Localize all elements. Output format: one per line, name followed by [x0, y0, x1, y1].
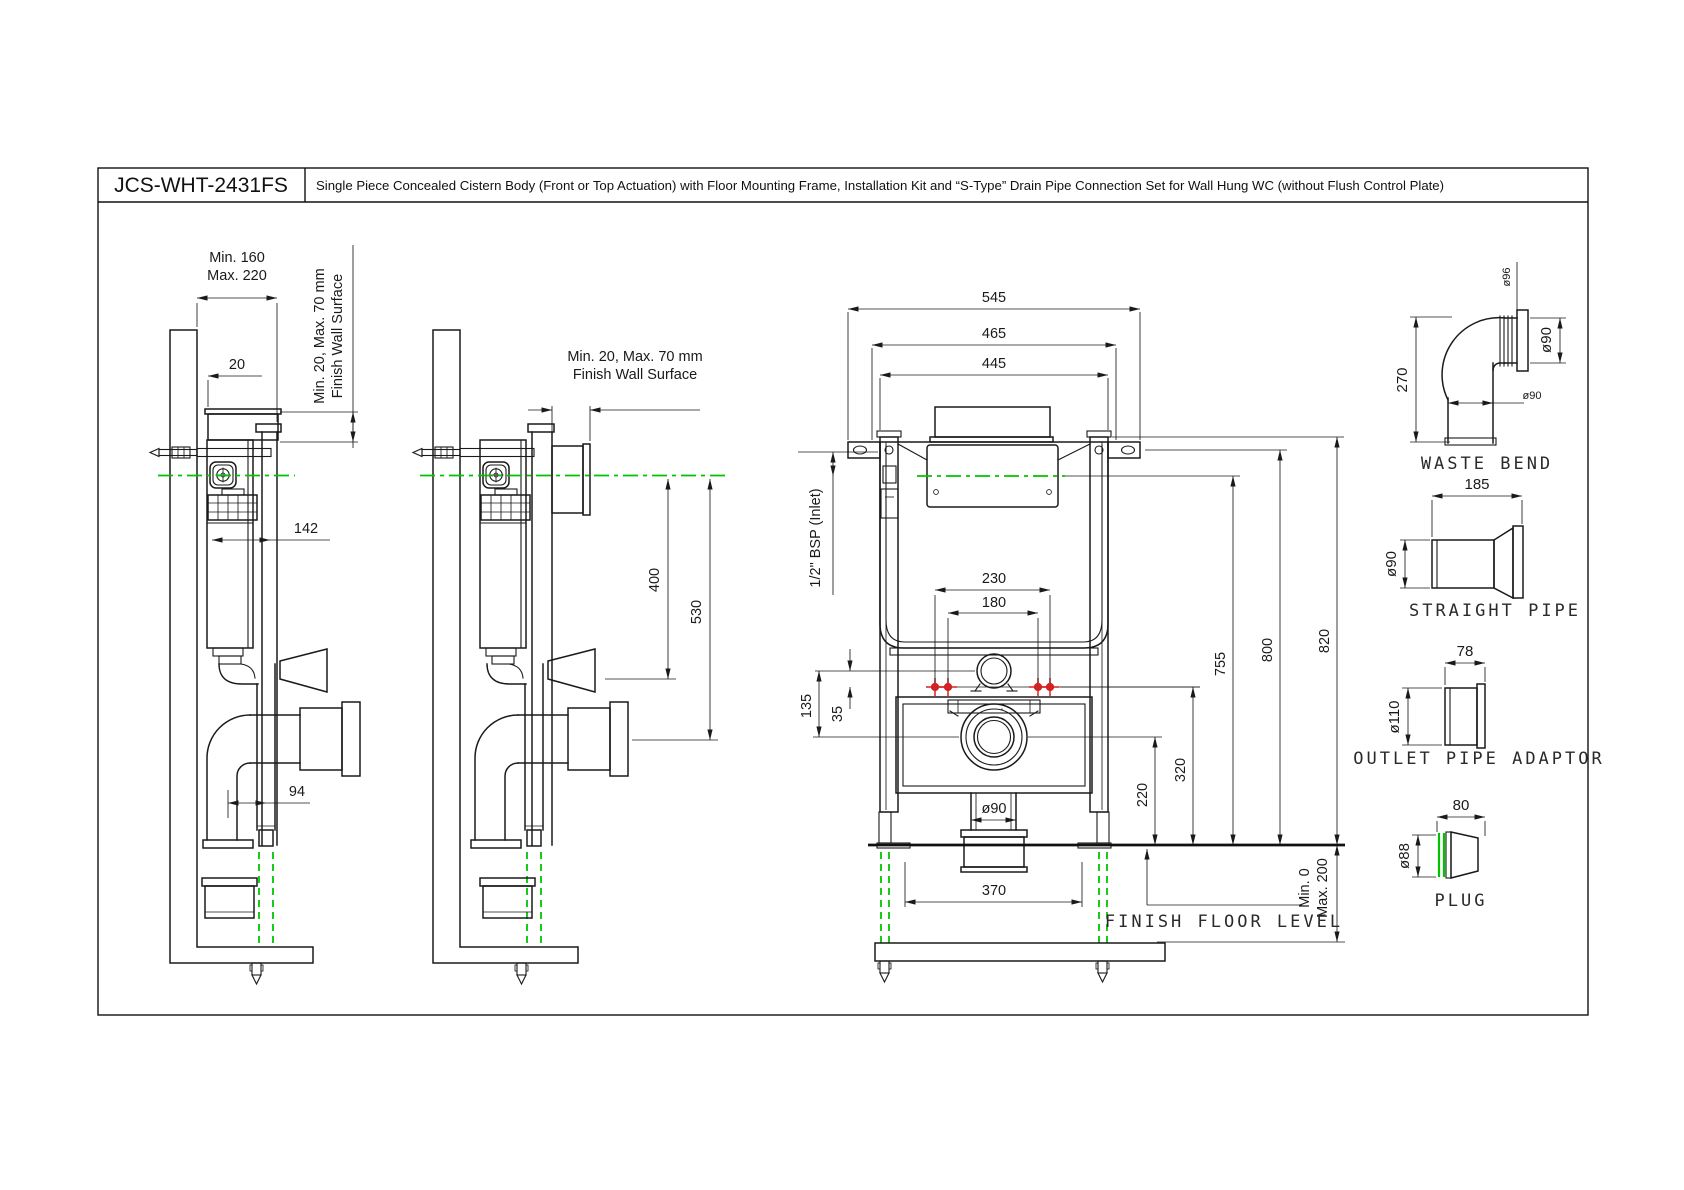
waste-bend-label: WASTE BEND: [1421, 454, 1553, 474]
part-outlet-pipe-adaptor: 78 ø110 OUTLET PIPE ADAPTOR: [1353, 643, 1604, 769]
dim-outlet-dia: ø90: [982, 801, 1007, 817]
dim-pipe-length: 185: [1464, 476, 1489, 493]
dim-panel-cl-height: 755: [1213, 652, 1229, 676]
title-block: JCS-WHT-2431FS Single Piece Concealed Ci…: [114, 174, 1444, 197]
dim-frame-width: 445: [982, 356, 1006, 372]
finish-floor-label: FINISH FLOOR LEVEL: [1105, 912, 1343, 932]
structural-floor: [875, 943, 1165, 961]
dim-panel-height: 400: [647, 568, 663, 592]
dim-plug-length: 80: [1453, 797, 1470, 814]
technical-drawing-page: JCS-WHT-2431FS Single Piece Concealed Ci…: [0, 0, 1684, 1190]
dim-bend-d90-outlet: ø90: [1538, 327, 1555, 353]
wall-bracket-right: [1108, 442, 1140, 458]
dim-rear-gap: 20: [229, 357, 245, 373]
dim-body-depth: 142: [294, 521, 318, 537]
dim-fixing-height: 320: [1173, 758, 1189, 782]
dim-plug-dia: ø88: [1396, 843, 1413, 869]
dim-35: 35: [830, 706, 846, 722]
straight-pipe-label: STRAIGHT PIPE: [1409, 601, 1581, 621]
floor-range-min: Min. 0: [1297, 868, 1313, 908]
drawing-canvas: JCS-WHT-2431FS Single Piece Concealed Ci…: [0, 0, 1684, 1190]
dim-drain-height: 220: [1135, 783, 1151, 807]
dim-pipe-dia: ø90: [1383, 551, 1400, 577]
wall-floor-section: [170, 330, 313, 963]
wall-note-line2: Finish Wall Surface: [573, 367, 697, 383]
dim-foot-span: 370: [982, 883, 1006, 899]
wall-bracket-left: [848, 442, 880, 458]
floor-range-max: Max. 200: [1315, 858, 1331, 918]
dim-fixing-inner: 180: [982, 595, 1006, 611]
part-plug: 80 ø88 PLUG: [1396, 797, 1487, 911]
part-straight-pipe: 185 ø90 STRAIGHT PIPE: [1383, 476, 1581, 621]
dim-fixing-outer: 230: [982, 571, 1006, 587]
plug-label: PLUG: [1435, 891, 1488, 911]
dim-bend-d90-body: ø90: [1523, 390, 1542, 402]
part-waste-bend: 270 ø96 ø90 ø90 WASTE BEND: [1394, 262, 1566, 474]
dim-bracket-height: 800: [1260, 638, 1276, 662]
side-view-top-actuation: Min. 160 Max. 220 20 Min. 20, Max. 70 mm…: [150, 245, 360, 984]
dim-adaptor-length: 78: [1457, 643, 1474, 660]
dim-bracket-width: 465: [982, 326, 1006, 342]
model-number: JCS-WHT-2431FS: [114, 174, 288, 197]
dim-overall-width: 545: [982, 290, 1006, 306]
dim-adaptor-dia: ø110: [1386, 700, 1403, 733]
dim-outlet-offset: 94: [289, 784, 305, 800]
inlet-note: 1/2" BSP (Inlet): [808, 488, 824, 587]
wall-note-line1: Min. 20, Max. 70 mm: [312, 268, 328, 403]
dim-spud-height: 530: [689, 600, 705, 624]
side-view-front-actuation: Min. 20, Max. 70 mm Finish Wall Surface …: [413, 330, 725, 984]
front-view: 545 465 445 1/2" BSP (Inlet) 230 180 135…: [798, 290, 1345, 982]
outlet-adaptor-label: OUTLET PIPE ADAPTOR: [1353, 749, 1604, 769]
dim-bend-d96: ø96: [1501, 268, 1513, 287]
dim-depth-min: Min. 160: [209, 250, 265, 266]
wall-floor-section: [433, 330, 578, 963]
dim-bend-height: 270: [1394, 367, 1411, 392]
dim-frame-height: 820: [1317, 629, 1333, 653]
dim-135: 135: [799, 694, 815, 718]
dim-depth-max: Max. 220: [207, 268, 267, 284]
wall-note-line2: Finish Wall Surface: [330, 274, 346, 398]
drawing-description: Single Piece Concealed Cistern Body (Fro…: [316, 178, 1444, 193]
wall-note-line1: Min. 20, Max. 70 mm: [567, 349, 702, 365]
